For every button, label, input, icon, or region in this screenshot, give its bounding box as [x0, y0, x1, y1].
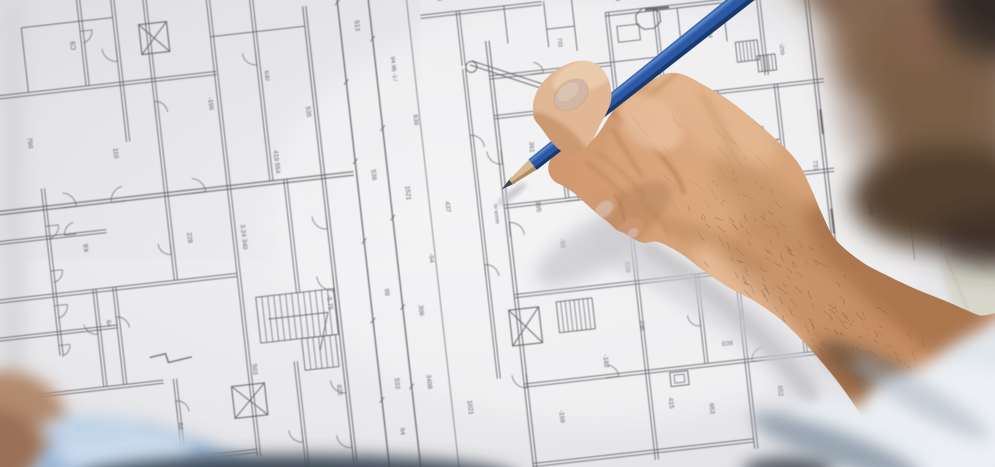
svg-text:C9: C9: [70, 41, 78, 51]
svg-text:603: 603: [721, 338, 733, 346]
svg-text:733: 733: [556, 38, 563, 48]
svg-text:536: 536: [369, 169, 377, 181]
svg-text:733: 733: [811, 160, 819, 172]
svg-text:84: 84: [176, 422, 184, 430]
svg-text:630: 630: [263, 71, 270, 82]
svg-text:503: 503: [250, 364, 258, 376]
svg-text:513: 513: [353, 20, 361, 32]
svg-text:258: 258: [638, 320, 645, 331]
svg-text:533: 533: [393, 378, 401, 390]
svg-text:391: 391: [527, 141, 535, 153]
svg-text:110: 110: [111, 148, 119, 159]
svg-text:535: 535: [304, 106, 312, 118]
svg-text:195: 195: [534, 201, 542, 213]
svg-text:630: 630: [411, 114, 419, 126]
svg-text:437: 437: [443, 201, 451, 213]
svg-text:-199: -199: [557, 410, 565, 424]
svg-text:306: 306: [417, 305, 425, 317]
svg-text:K8: K8: [83, 243, 91, 252]
svg-text:94: 94: [398, 427, 406, 435]
svg-text:228: 228: [185, 232, 193, 244]
svg-text:-182: -182: [601, 354, 609, 368]
svg-text:790: 790: [26, 137, 34, 149]
svg-text:415: 415: [667, 397, 675, 409]
svg-text:625: 625: [335, 384, 343, 396]
svg-text:-199: -199: [206, 97, 214, 111]
svg-text:-94: -94: [427, 253, 435, 263]
svg-text:99: 99: [383, 288, 391, 296]
svg-text:653: 653: [707, 403, 715, 415]
